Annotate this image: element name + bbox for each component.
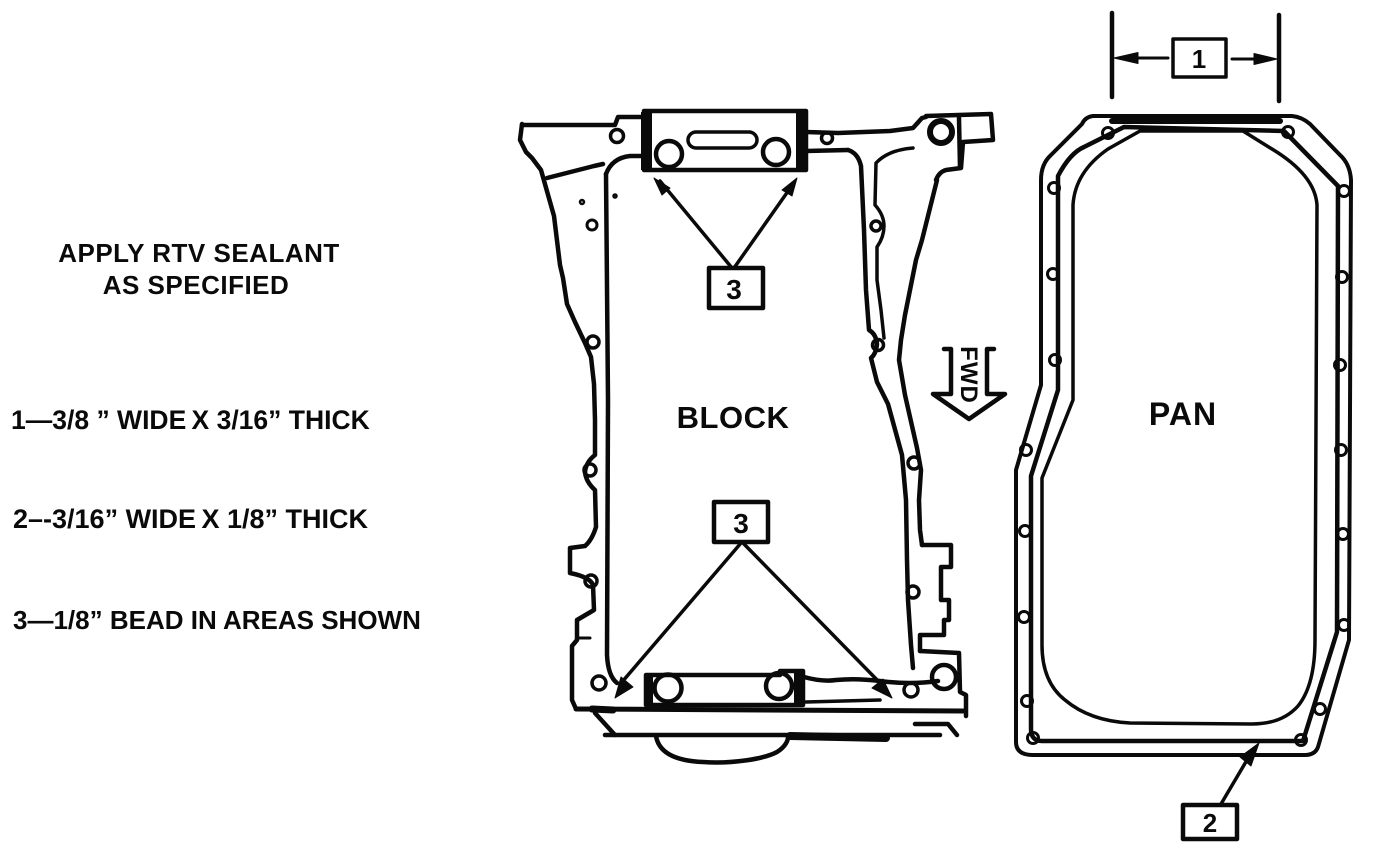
svg-text:2–-3/16” WIDE X 1/8” THICK: 2–-3/16” WIDE X 1/8” THICK xyxy=(13,504,369,534)
svg-text:2: 2 xyxy=(1203,808,1217,838)
svg-text:3: 3 xyxy=(733,508,749,539)
svg-text:FWD: FWD xyxy=(955,346,982,404)
svg-text:BLOCK: BLOCK xyxy=(677,400,790,435)
svg-text:3—1/8” BEAD IN AREAS SHOWN: 3—1/8” BEAD IN AREAS SHOWN xyxy=(13,605,421,635)
svg-text:AS SPECIFIED: AS SPECIFIED xyxy=(103,270,290,300)
svg-text:1: 1 xyxy=(1192,44,1206,74)
svg-text:1—3/8 ” WIDE X 3/16” THICK: 1—3/8 ” WIDE X 3/16” THICK xyxy=(11,405,370,435)
svg-text:PAN: PAN xyxy=(1149,396,1217,432)
svg-text:APPLY RTV SEALANT: APPLY RTV SEALANT xyxy=(58,238,340,268)
svg-text:3: 3 xyxy=(726,274,742,305)
